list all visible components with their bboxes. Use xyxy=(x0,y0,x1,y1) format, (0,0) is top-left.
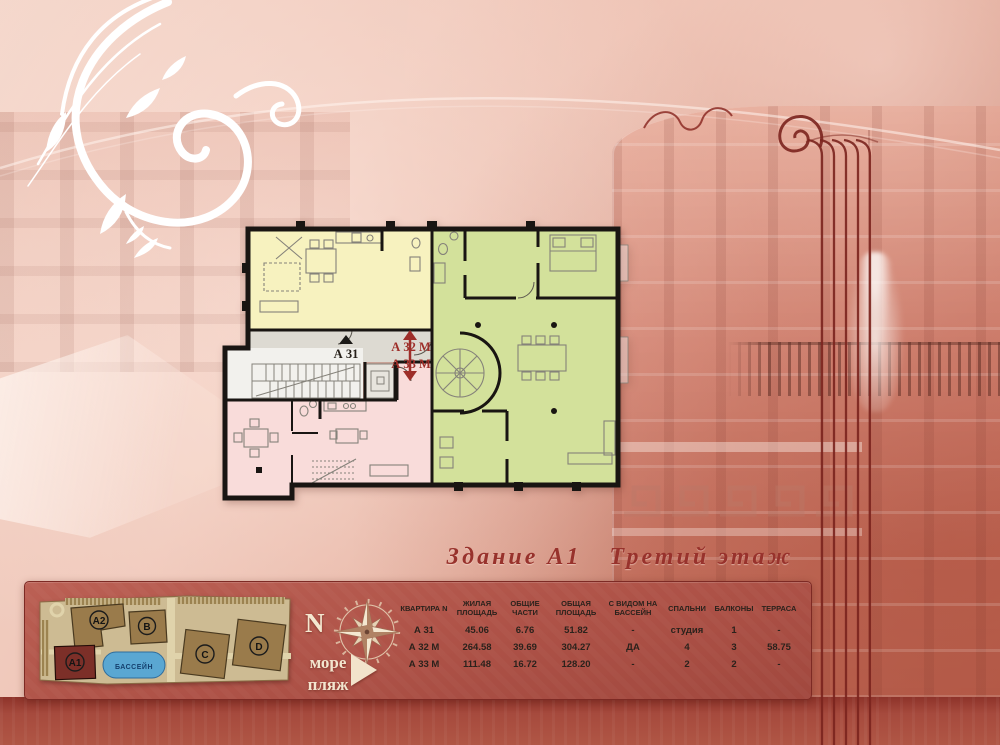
table-header-row: КВАРТИРА N ЖИЛАЯ ПЛОЩАДЬ ОБЩИЕ ЧАСТИ ОБЩ… xyxy=(397,594,803,622)
background-pergola-photo xyxy=(0,335,240,595)
table-cell: 264.58 xyxy=(451,639,503,656)
table-cell: А 31 xyxy=(397,622,451,639)
page-title: Здание А1 Третий этаж xyxy=(420,544,820,571)
table-cell: 128.20 xyxy=(547,656,605,673)
building-a1-label: А1 xyxy=(69,658,82,669)
building-a2-label: А2 xyxy=(93,616,106,627)
table-header-cell: БАЛКОНЫ xyxy=(713,594,755,622)
table-cell: А 33 М xyxy=(397,656,451,673)
table-cell: 3 xyxy=(713,639,755,656)
table-cell: 4 xyxy=(661,639,713,656)
title-building: Здание А1 xyxy=(447,544,582,571)
table-cell: 58.75 xyxy=(755,639,803,656)
table-header-cell: С ВИДОМ НА БАССЕЙН xyxy=(605,594,661,622)
table-cell: - xyxy=(755,656,803,673)
pool-label: БАССЕЙН xyxy=(115,662,153,671)
table-cell: ДА xyxy=(605,639,661,656)
table-header-cell: КВАРТИРА N xyxy=(397,594,451,622)
table-cell: 304.27 xyxy=(547,639,605,656)
table-cell: - xyxy=(755,622,803,639)
scroll-flourish xyxy=(644,108,732,130)
table-header-cell: ЖИЛАЯ ПЛОЩАДЬ xyxy=(451,594,503,622)
table-header-cell: ОБЩИЕ ЧАСТИ xyxy=(503,594,547,622)
table-cell: 1 xyxy=(713,622,755,639)
info-panel: БАССЕЙН А2 В А1 С D N xyxy=(24,581,812,700)
table-cell: студия xyxy=(661,622,713,639)
apartments-table: КВАРТИРА N ЖИЛАЯ ПЛОЩАДЬ ОБЩИЕ ЧАСТИ ОБЩ… xyxy=(397,594,803,673)
apartment-a31-label: А 31 xyxy=(334,347,359,361)
table-header-cell: СПАЛЬНИ xyxy=(661,594,713,622)
table-row: А 31 45.06 6.76 51.82 - студия 1 - xyxy=(397,622,803,639)
apartment-a32m-label: А 32 М xyxy=(391,340,431,354)
table-row: А 33 М 111.48 16.72 128.20 - 2 2 - xyxy=(397,656,803,673)
table-cell: 6.76 xyxy=(503,622,547,639)
volute-spiral xyxy=(780,116,822,151)
table-cell: 16.72 xyxy=(503,656,547,673)
table-header-cell: ТЕРРАСА xyxy=(755,594,803,622)
pool: БАССЕЙН xyxy=(103,652,165,678)
table-cell: А 32 М xyxy=(397,639,451,656)
building-d-label: D xyxy=(255,642,262,653)
apartment-a31-region xyxy=(248,229,432,330)
title-floor: Третий этаж xyxy=(609,544,793,571)
table-row: А 32 М 264.58 39.69 304.27 ДА 4 3 58.75 xyxy=(397,639,803,656)
table-cell: - xyxy=(605,656,661,673)
brochure-page: А 31 А 32 М А 33 М Здание А1 Третий этаж xyxy=(0,0,1000,745)
table-cell: 111.48 xyxy=(451,656,503,673)
sea-direction-arrow xyxy=(351,654,377,686)
table-cell: 2 xyxy=(661,656,713,673)
table-cell: 2 xyxy=(713,656,755,673)
table-header-cell: ОБЩАЯ ПЛОЩАДЬ xyxy=(547,594,605,622)
table-cell: 39.69 xyxy=(503,639,547,656)
floor-plan: А 31 А 32 М А 33 М xyxy=(220,205,640,505)
table-cell: - xyxy=(605,622,661,639)
column-flutes xyxy=(808,140,870,745)
table-cell: 51.82 xyxy=(547,622,605,639)
building-c-label: С xyxy=(201,650,208,661)
site-map: БАССЕЙН А2 В А1 С D xyxy=(37,594,293,686)
apartment-a33m-label: А 33 М xyxy=(391,357,431,371)
building-b-label: В xyxy=(143,622,150,633)
table-cell: 45.06 xyxy=(451,622,503,639)
